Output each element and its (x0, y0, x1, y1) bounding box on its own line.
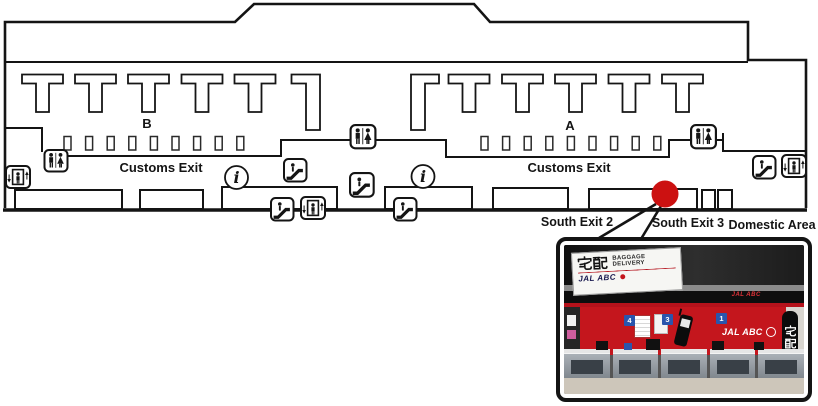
elevator-icon (782, 155, 806, 177)
south-exit-3-label: South Exit 3 (652, 216, 724, 230)
wall-brand-logo: JAL ABC (722, 327, 776, 337)
restroom-icon (45, 150, 68, 172)
elevator-icon (301, 197, 325, 219)
brand-emblem-icon (766, 327, 776, 337)
takuhai-kanji-icon (785, 325, 796, 349)
counter-equipment (596, 341, 608, 350)
counter-photo: JAL ABC 4 3 1 JAL ABC (564, 245, 804, 394)
sign-brand-text: JAL ABC (578, 273, 616, 284)
baggage-delivery-sign: BAGGAGE DELIVERY JAL ABC (571, 247, 683, 296)
south-exit-2-label: South Exit 2 (541, 215, 613, 229)
customs-exit-label-left: Customs Exit (119, 160, 203, 175)
restroom-icon (351, 125, 376, 148)
sign-line2: DELIVERY (612, 260, 645, 268)
customs-booths-left (64, 137, 244, 151)
wall-brand-text: JAL ABC (722, 327, 763, 337)
airport-terminal-map: i i B A Customs Exit Customs Exit South … (0, 0, 818, 406)
escalator-icon (271, 198, 294, 221)
wall-poster (634, 315, 651, 338)
domestic-area-label: Domestic Area (728, 218, 816, 232)
counter-number-tag: 3 (662, 314, 673, 325)
escalator-icon (394, 198, 417, 221)
sign-red-dot-icon (620, 274, 625, 279)
counter-number-tag: 4 (624, 315, 635, 326)
photo-pink-poster (567, 330, 576, 339)
counter-equipment (624, 343, 632, 350)
information-icon: i (225, 166, 248, 189)
elevator-icon (6, 166, 30, 188)
counter-photo-inset: JAL ABC 4 3 1 JAL ABC (556, 237, 812, 402)
takuhai-kanji-icon (577, 255, 608, 271)
counter-desk-unit (613, 349, 659, 380)
escalator-icon (350, 173, 374, 197)
counter-desk-unit (661, 349, 707, 380)
photo-paper (567, 315, 576, 326)
counter-desks (564, 349, 804, 380)
section-a-label: A (565, 118, 575, 133)
counter-desk-unit (710, 349, 756, 380)
customs-walls (5, 128, 806, 157)
counter-equipment (646, 339, 660, 350)
restroom-icon (691, 125, 716, 148)
baggage-carousels-section-b (22, 75, 320, 131)
counter-equipment (712, 341, 724, 350)
svg-text:i: i (420, 167, 426, 186)
photo-floor (564, 378, 804, 394)
counter-equipment (754, 342, 764, 350)
counter-number-tag: 1 (716, 313, 727, 324)
information-icon: i (412, 165, 435, 188)
band-brand-text: JAL ABC (732, 292, 761, 298)
section-b-label: B (142, 116, 151, 131)
location-marker (652, 181, 679, 208)
counter-desk-unit (758, 349, 804, 380)
escalator-icon (284, 159, 307, 182)
counter-desk-unit (564, 349, 610, 380)
escalator-icon (753, 156, 776, 179)
customs-exit-label-right: Customs Exit (527, 160, 611, 175)
baggage-carousels-section-a (411, 75, 703, 131)
svg-text:i: i (233, 168, 239, 187)
customs-booths-right (481, 137, 661, 151)
